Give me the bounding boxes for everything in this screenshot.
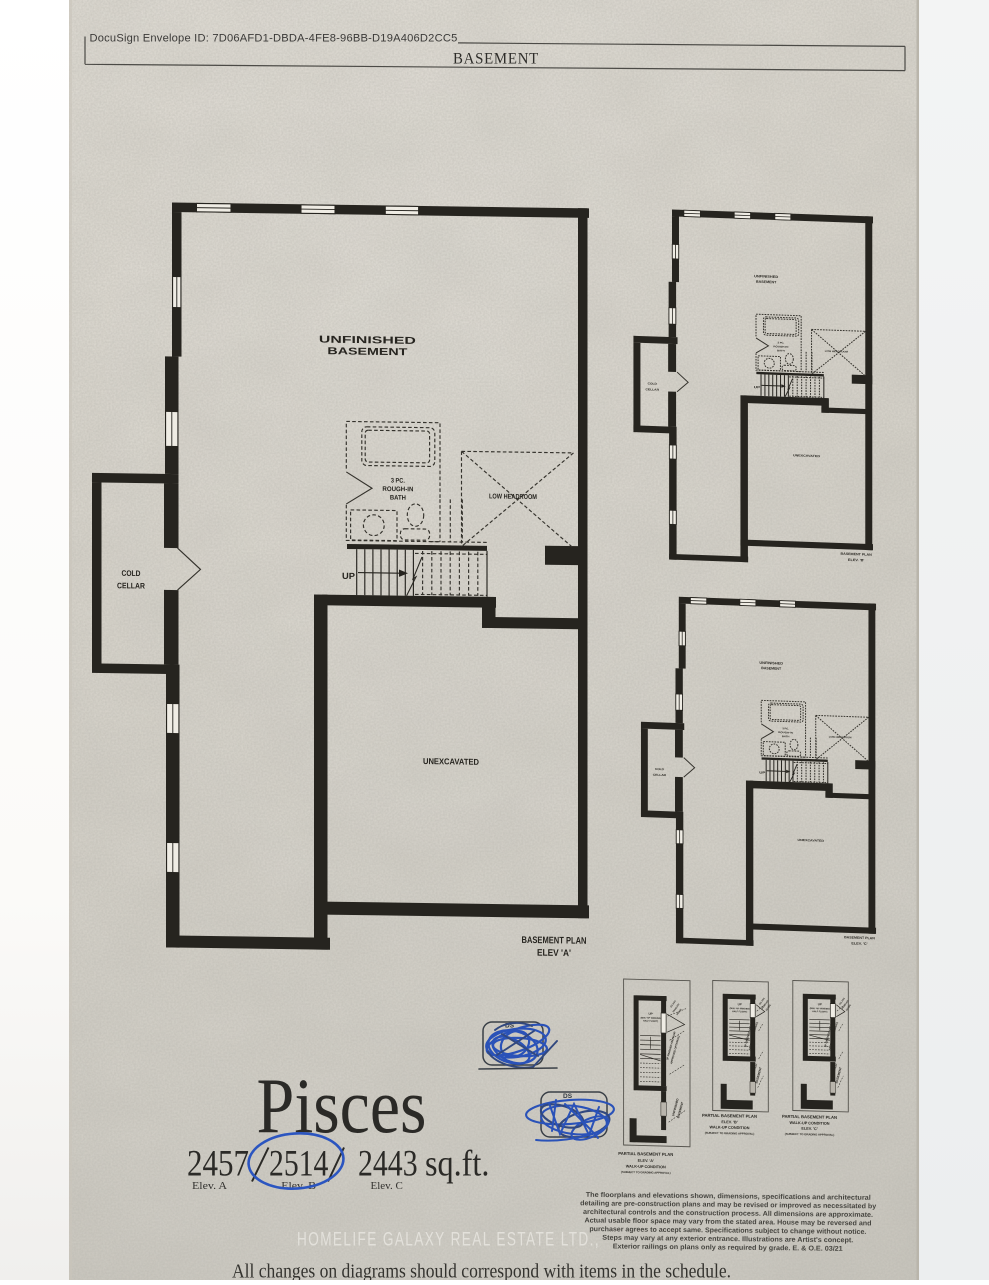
svg-text:UP: UP	[649, 1012, 653, 1016]
svg-text:ELEV. 'C': ELEV. 'C'	[851, 941, 867, 946]
svg-text:ELEV. 'B': ELEV. 'B'	[721, 1120, 737, 1124]
svg-text:UNFINISHED: UNFINISHED	[319, 335, 416, 347]
svg-text:ELEV. 'C': ELEV. 'C'	[801, 1127, 817, 1131]
svg-text:2514: 2514	[269, 1144, 328, 1185]
svg-text:2457: 2457	[187, 1144, 249, 1185]
svg-text:LOW HEADROOM: LOW HEADROOM	[489, 493, 537, 501]
svg-text:ELEV 'A': ELEV 'A'	[537, 948, 571, 959]
svg-text:3 PC.: 3 PC.	[391, 478, 405, 485]
svg-text:CELLAR: CELLAR	[645, 387, 658, 391]
svg-text:COLD: COLD	[655, 767, 664, 771]
svg-text:3 PC.: 3 PC.	[778, 342, 785, 344]
svg-text:2443: 2443	[358, 1144, 418, 1185]
svg-text:ELEV. 'B': ELEV. 'B'	[848, 558, 865, 563]
svg-text:CELLAR: CELLAR	[653, 773, 666, 777]
svg-text:UP: UP	[738, 1002, 742, 1006]
svg-text:sq.ft.: sq.ft.	[425, 1144, 489, 1185]
svg-text:UP: UP	[342, 571, 355, 581]
svg-text:Elev. C: Elev. C	[371, 1181, 403, 1192]
svg-text:UNFINISHED: UNFINISHED	[759, 661, 783, 666]
svg-text:CELLAR: CELLAR	[117, 581, 145, 590]
svg-text:ROUGH-IN: ROUGH-IN	[382, 486, 413, 493]
svg-text:DocuSign Envelope ID: 7D06AFD1: DocuSign Envelope ID: 7D06AFD1-DBDA-4FE8…	[90, 33, 458, 45]
svg-text:BASEMENT: BASEMENT	[327, 346, 407, 358]
svg-text:UP: UP	[759, 771, 765, 775]
svg-text:WALK-UP CONDITION: WALK-UP CONDITION	[790, 1121, 830, 1126]
svg-text:BATH: BATH	[390, 495, 406, 502]
svg-text:Elev. A: Elev. A	[192, 1181, 227, 1192]
svg-text:HALF FLIGHT): HALF FLIGHT)	[812, 1010, 827, 1013]
svg-text:COLD: COLD	[648, 381, 657, 385]
svg-text:ELEV. 'A': ELEV. 'A'	[638, 1159, 654, 1163]
svg-text:WALK-UP CONDITION: WALK-UP CONDITION	[709, 1125, 749, 1130]
svg-text:BASEMENT: BASEMENT	[453, 51, 539, 68]
svg-text:WALK-UP CONDITION: WALK-UP CONDITION	[626, 1165, 666, 1170]
svg-text:UNEXCAVATED: UNEXCAVATED	[423, 756, 479, 767]
svg-text:BASEMENT: BASEMENT	[756, 280, 777, 285]
svg-text:HOMELIFE GALAXY REAL ESTATE LT: HOMELIFE GALAXY REAL ESTATE LTD.,	[297, 1229, 600, 1251]
svg-text:HALF FLIGHT): HALF FLIGHT)	[732, 1010, 747, 1013]
svg-text:All changes on diagrams should: All changes on diagrams should correspon…	[232, 1261, 731, 1281]
svg-text:HALF FLIGHT): HALF FLIGHT)	[643, 1020, 658, 1023]
svg-text:UP: UP	[818, 1002, 822, 1006]
svg-text:BASEMENT PLAN: BASEMENT PLAN	[522, 935, 587, 947]
svg-text:3 PC.: 3 PC.	[782, 728, 789, 730]
svg-text:BASEMENT: BASEMENT	[761, 666, 782, 671]
svg-text:COLD: COLD	[122, 569, 141, 578]
